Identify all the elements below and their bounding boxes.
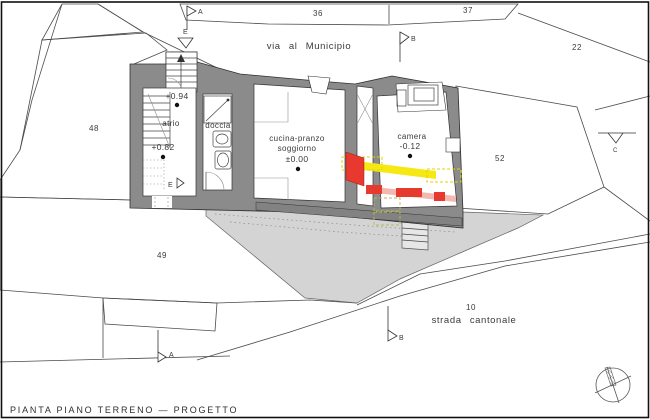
parcel-48-label: 48 xyxy=(89,124,99,133)
elevation-atrio-lower: +0.82 xyxy=(151,142,174,152)
room-label-camera: camera xyxy=(397,132,426,141)
elevation-camera: -0.12 xyxy=(400,141,421,151)
section-marker-e-top-label: E xyxy=(183,29,188,36)
elevation-dot xyxy=(161,155,165,159)
parcel-36-label: 36 xyxy=(313,9,323,18)
elevation-dot xyxy=(408,154,412,158)
camera-bay xyxy=(396,82,446,112)
new-wall-segment xyxy=(346,152,364,186)
parcel-49-label: 49 xyxy=(157,251,167,260)
elevation-cucina: ±0.00 xyxy=(286,154,309,164)
room-doccia xyxy=(203,94,232,190)
section-marker-a-bottom-label: A xyxy=(169,352,174,359)
section-marker-a-top: A xyxy=(187,6,203,30)
elevation-atrio-upper: +0.94 xyxy=(165,91,188,101)
section-marker-a-bottom: A xyxy=(158,330,174,362)
room-label-atrio: atrio xyxy=(162,119,180,128)
title-block-text: PIANTA PIANO TERRENO — PROGETTO xyxy=(10,405,238,415)
road-label-via: via al Municipio xyxy=(267,41,352,52)
parcel-37-label: 37 xyxy=(463,6,473,15)
shower-head-icon xyxy=(227,99,230,102)
parcel-52-label: 52 xyxy=(495,154,505,163)
room-label-cucina-line1: cucina-pranzo xyxy=(269,134,325,143)
parcel-10-label: 10 xyxy=(466,303,476,312)
section-marker-e-atrio-label: E xyxy=(168,182,173,189)
section-marker-a-top-label: A xyxy=(198,9,203,16)
entrance-stair xyxy=(166,52,197,92)
north-compass-icon xyxy=(595,367,631,403)
section-marker-b-bottom: B xyxy=(388,306,404,342)
room-label-cucina-line2: soggiorno xyxy=(278,144,317,153)
elevation-dot xyxy=(175,103,179,107)
room-label-doccia: doccia xyxy=(205,121,231,130)
section-marker-e-top: E xyxy=(178,29,193,48)
section-marker-b-bottom-label: B xyxy=(399,335,404,342)
road-label-strada: strada cantonale xyxy=(432,315,517,326)
drawing-sheet: 48 36 37 22 52 49 10 via al Municipio st… xyxy=(0,0,650,420)
elevation-dot xyxy=(296,167,300,171)
parcel-52-area xyxy=(456,86,604,214)
parcel-22-label: 22 xyxy=(572,43,582,52)
section-marker-c-right: C xyxy=(598,133,636,154)
section-marker-b-top-label: B xyxy=(411,36,416,43)
section-marker-c-label: C xyxy=(613,148,618,154)
wall-niche xyxy=(446,138,460,152)
floor-plan-canvas: 48 36 37 22 52 49 10 via al Municipio st… xyxy=(0,0,650,420)
section-marker-b-top: B xyxy=(400,32,416,62)
